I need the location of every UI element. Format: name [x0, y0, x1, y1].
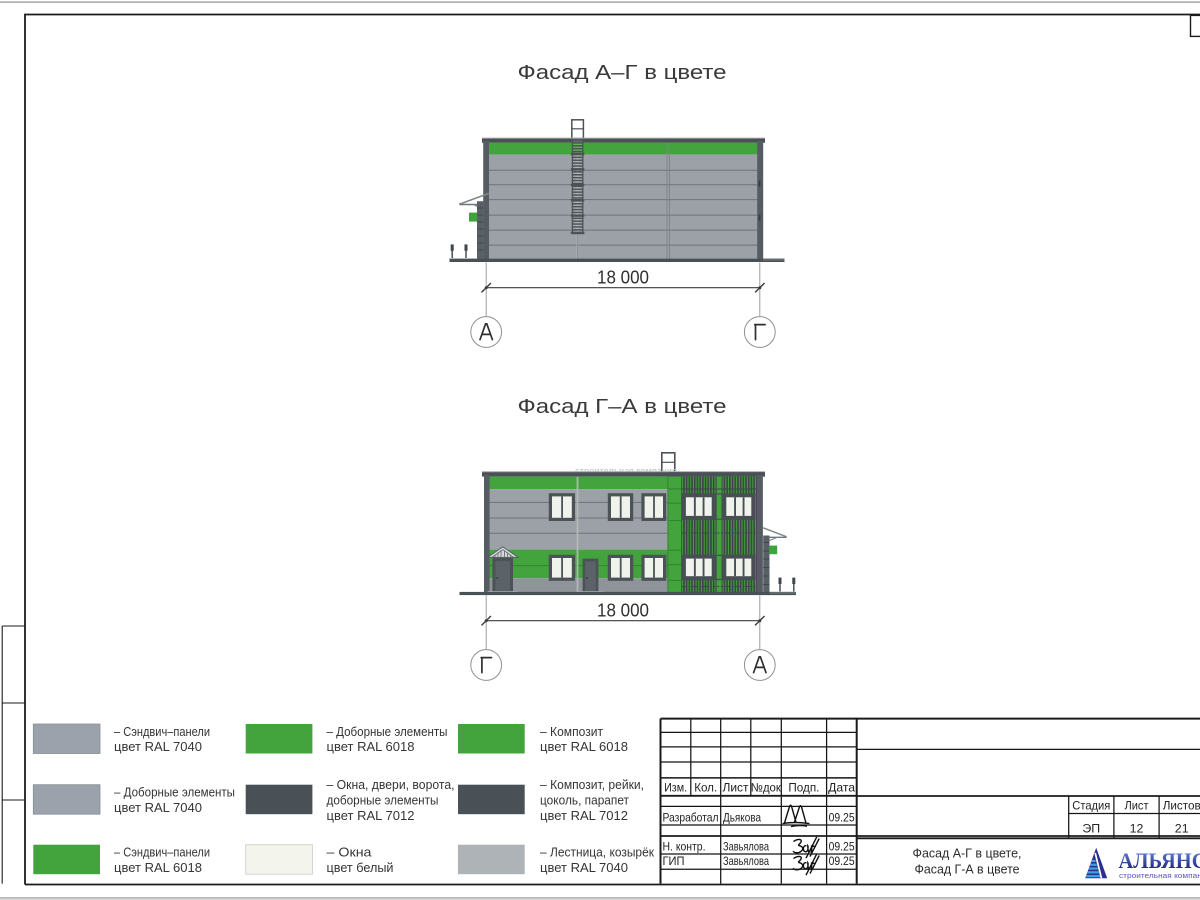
svg-text:– Сэндвич–панели: – Сэндвич–панели	[114, 846, 210, 860]
svg-text:цвет RAL 6018: цвет RAL 6018	[540, 740, 628, 754]
svg-text:Фасад А–Г в цвете: Фасад А–Г в цвете	[518, 61, 727, 84]
svg-text:21: 21	[1175, 822, 1189, 836]
svg-text:18 000: 18 000	[597, 600, 649, 620]
svg-text:цвет белый: цвет белый	[327, 861, 394, 875]
svg-text:– Сэндвич–панели: – Сэндвич–панели	[114, 725, 210, 739]
svg-text:ГИП: ГИП	[663, 854, 685, 868]
svg-text:Листов: Листов	[1163, 799, 1200, 813]
svg-text:цвет RAL 7040: цвет RAL 7040	[114, 801, 202, 815]
svg-text:цвет RAL 7012: цвет RAL 7012	[327, 809, 415, 823]
svg-text:Изм.: Изм.	[664, 781, 687, 795]
svg-text:Фасад Г-А в цвете: Фасад Г-А в цвете	[915, 863, 1020, 877]
svg-text:– Композит, рейки,: – Композит, рейки,	[540, 778, 644, 792]
svg-text:Завьялова: Завьялова	[723, 839, 769, 853]
svg-text:12: 12	[1130, 822, 1144, 836]
svg-text:АЛЬЯНС: АЛЬЯНС	[1119, 848, 1200, 873]
svg-text:18 000: 18 000	[597, 267, 649, 287]
svg-text:Н. контр.: Н. контр.	[663, 839, 706, 853]
svg-text:Лист: Лист	[1125, 799, 1149, 813]
svg-text:09.25: 09.25	[829, 854, 855, 868]
svg-text:– Лестница, козырёк: – Лестница, козырёк	[540, 846, 654, 860]
svg-text:09.25: 09.25	[829, 839, 855, 853]
svg-text:цвет RAL 7012: цвет RAL 7012	[540, 809, 628, 823]
svg-text:Завьялова: Завьялова	[723, 854, 769, 868]
svg-text:09.25: 09.25	[829, 811, 855, 825]
svg-text:Стадия: Стадия	[1072, 799, 1110, 813]
svg-text:Разработал: Разработал	[663, 811, 719, 825]
svg-text:Кол.: Кол.	[694, 781, 717, 795]
svg-text:цвет RAL 6018: цвет RAL 6018	[327, 740, 415, 754]
svg-text:Дьякова: Дьякова	[723, 811, 761, 825]
svg-text:ЭП: ЭП	[1082, 822, 1100, 836]
svg-text:Фасад Г–А в цвете: Фасад Г–А в цвете	[518, 395, 727, 418]
svg-text:– Окна, двери, ворота,: – Окна, двери, ворота,	[327, 778, 455, 792]
svg-text:цвет RAL 7040: цвет RAL 7040	[540, 861, 628, 875]
svg-text:– Доборные элементы: – Доборные элементы	[327, 725, 448, 739]
svg-text:Фасад А-Г в цвете,: Фасад А-Г в цвете,	[913, 847, 1022, 861]
svg-text:№док: №док	[751, 781, 782, 795]
svg-text:Дата: Дата	[828, 781, 855, 795]
svg-text:цоколь, парапет: цоколь, парапет	[540, 794, 629, 808]
svg-text:Подп.: Подп.	[788, 781, 819, 795]
svg-text:цвет RAL 7040: цвет RAL 7040	[114, 740, 202, 754]
svg-text:цвет RAL 6018: цвет RAL 6018	[114, 861, 202, 875]
svg-text:доборные элементы: доборные элементы	[327, 794, 439, 808]
svg-text:строительная компания: строительная компания	[1119, 871, 1200, 880]
svg-text:– Композит: – Композит	[540, 725, 603, 739]
svg-text:Лист: Лист	[723, 781, 749, 795]
svg-text:– Окна: – Окна	[327, 846, 372, 860]
svg-text:– Доборные элементы: – Доборные элементы	[114, 786, 235, 800]
